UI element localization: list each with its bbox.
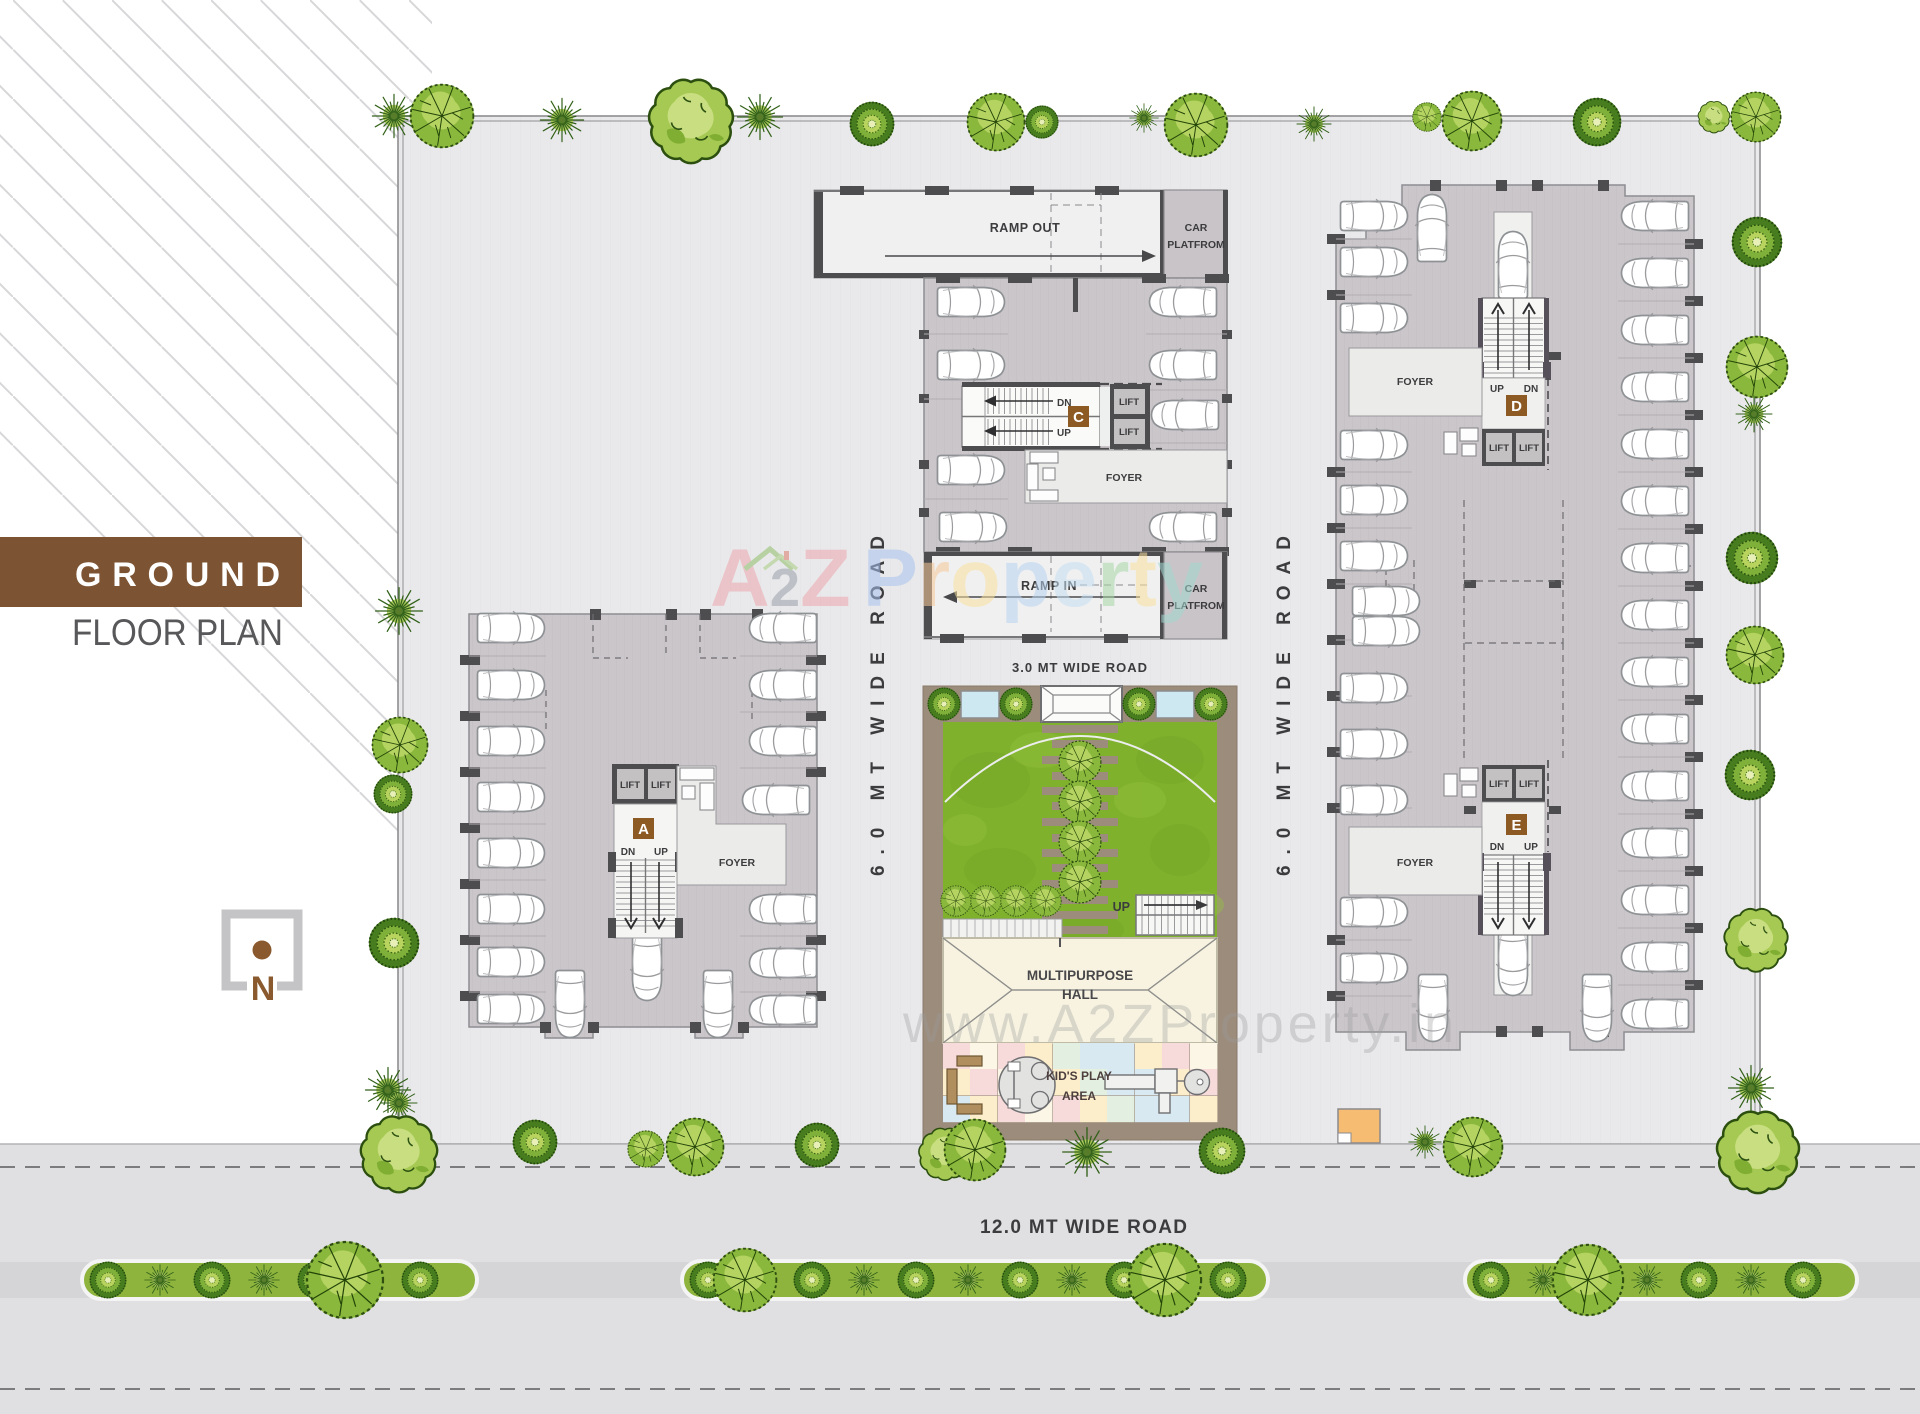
svg-text:PLATFROM: PLATFROM bbox=[1167, 239, 1225, 251]
svg-text:AREA: AREA bbox=[1062, 1089, 1096, 1103]
svg-text:DN: DN bbox=[1524, 384, 1538, 395]
svg-text:DN: DN bbox=[621, 847, 635, 858]
svg-text:LIFT: LIFT bbox=[1519, 443, 1539, 454]
svg-text:www.A2ZProperty.in: www.A2ZProperty.in bbox=[902, 994, 1454, 1054]
svg-text:FOYER: FOYER bbox=[1397, 857, 1434, 869]
svg-text:FOYER: FOYER bbox=[719, 857, 756, 869]
svg-text:D: D bbox=[1511, 398, 1522, 415]
svg-text:C: C bbox=[1073, 409, 1084, 426]
svg-text:N: N bbox=[251, 970, 276, 1008]
svg-text:LIFT: LIFT bbox=[651, 780, 671, 791]
svg-text:UP: UP bbox=[1113, 900, 1130, 914]
svg-text:CAR: CAR bbox=[1185, 222, 1208, 234]
svg-text:3.0 MT WIDE ROAD: 3.0 MT WIDE ROAD bbox=[1012, 660, 1147, 675]
svg-text:MULTIPURPOSE: MULTIPURPOSE bbox=[1027, 968, 1133, 983]
svg-text:FOYER: FOYER bbox=[1106, 472, 1143, 484]
svg-text:DN: DN bbox=[1490, 842, 1504, 853]
svg-text:LIFT: LIFT bbox=[1119, 397, 1139, 408]
svg-text:FLOOR PLAN: FLOOR PLAN bbox=[72, 612, 283, 653]
svg-text:UP: UP bbox=[1057, 428, 1071, 439]
svg-text:UP: UP bbox=[654, 847, 668, 858]
svg-text:A: A bbox=[638, 821, 649, 838]
svg-text:UP: UP bbox=[1524, 842, 1538, 853]
svg-text:LIFT: LIFT bbox=[620, 780, 640, 791]
svg-text:E: E bbox=[1511, 817, 1521, 834]
svg-text:LIFT: LIFT bbox=[1519, 779, 1539, 790]
svg-text:RAMP OUT: RAMP OUT bbox=[990, 221, 1060, 235]
svg-text:LIFT: LIFT bbox=[1489, 443, 1509, 454]
svg-text:KID'S PLAY: KID'S PLAY bbox=[1046, 1069, 1112, 1083]
svg-text:FOYER: FOYER bbox=[1397, 376, 1434, 388]
svg-text:LIFT: LIFT bbox=[1119, 427, 1139, 438]
svg-text:LIFT: LIFT bbox=[1489, 779, 1509, 790]
svg-text:UP: UP bbox=[1490, 384, 1504, 395]
